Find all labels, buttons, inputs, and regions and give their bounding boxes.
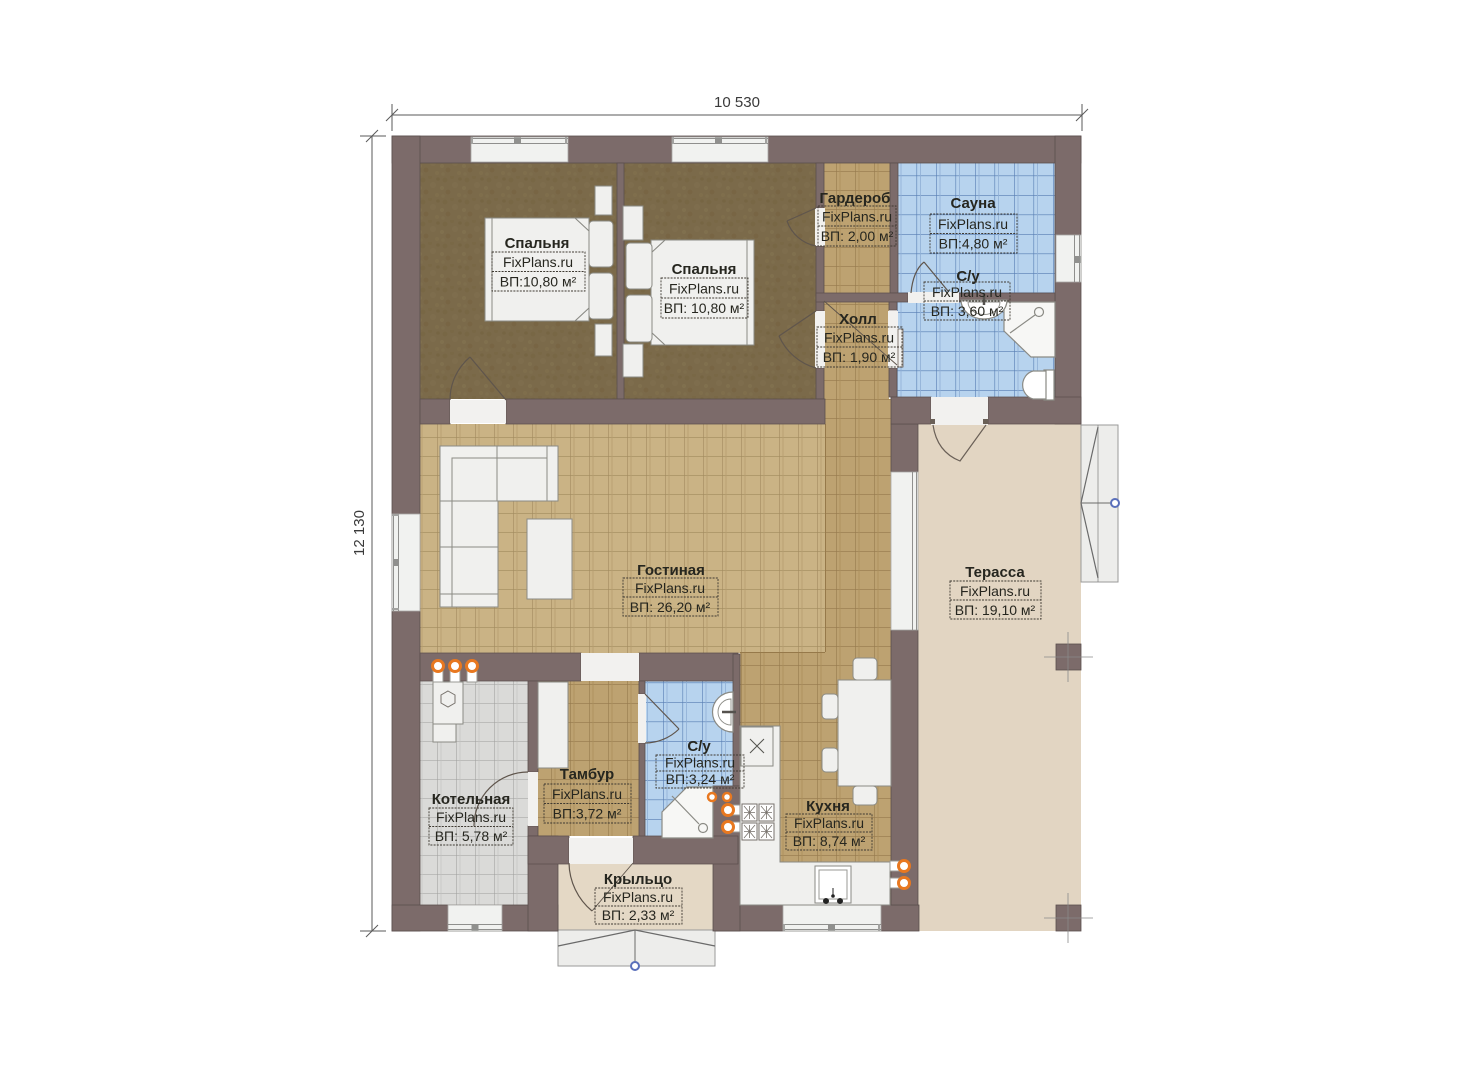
svg-text:ВП: 2,33 м²: ВП: 2,33 м²	[602, 907, 675, 923]
svg-text:FixPlans.ru: FixPlans.ru	[503, 254, 573, 270]
svg-text:FixPlans.ru: FixPlans.ru	[960, 583, 1030, 599]
svg-text:ВП:4,80 м²: ВП:4,80 м²	[939, 236, 1008, 252]
svg-text:Крыльцо: Крыльцо	[604, 871, 672, 888]
svg-text:Котельная: Котельная	[432, 791, 511, 808]
svg-text:FixPlans.ru: FixPlans.ru	[938, 216, 1008, 232]
svg-text:ВП: 10,80 м²: ВП: 10,80 м²	[664, 300, 745, 316]
svg-text:ВП: 19,10 м²: ВП: 19,10 м²	[955, 602, 1036, 618]
svg-text:FixPlans.ru: FixPlans.ru	[932, 284, 1002, 300]
svg-text:FixPlans.ru: FixPlans.ru	[794, 815, 864, 831]
svg-text:ВП: 8,74 м²: ВП: 8,74 м²	[793, 833, 866, 849]
svg-text:FixPlans.ru: FixPlans.ru	[824, 330, 894, 346]
svg-text:Спальня: Спальня	[672, 261, 737, 278]
svg-text:FixPlans.ru: FixPlans.ru	[436, 809, 506, 825]
svg-text:FixPlans.ru: FixPlans.ru	[822, 209, 892, 225]
svg-text:10 530: 10 530	[714, 94, 760, 111]
svg-text:ВП: 1,90 м²: ВП: 1,90 м²	[823, 349, 896, 365]
svg-text:Спальня: Спальня	[505, 235, 570, 252]
svg-text:Гардероб: Гардероб	[820, 190, 891, 207]
svg-text:FixPlans.ru: FixPlans.ru	[669, 281, 739, 297]
svg-text:ВП: 2,00 м²: ВП: 2,00 м²	[821, 228, 894, 244]
svg-text:12 130: 12 130	[351, 510, 368, 556]
svg-text:FixPlans.ru: FixPlans.ru	[603, 889, 673, 905]
svg-text:ВП: 5,78 м²: ВП: 5,78 м²	[435, 828, 508, 844]
svg-text:FixPlans.ru: FixPlans.ru	[552, 786, 622, 802]
svg-text:Холл: Холл	[839, 311, 877, 328]
svg-text:Кухня: Кухня	[806, 798, 850, 815]
svg-text:С/у: С/у	[687, 738, 711, 755]
svg-text:FixPlans.ru: FixPlans.ru	[635, 580, 705, 596]
svg-text:ВП:10,80 м²: ВП:10,80 м²	[500, 274, 577, 290]
svg-text:Тамбур: Тамбур	[560, 766, 614, 783]
svg-text:FixPlans.ru: FixPlans.ru	[665, 755, 735, 771]
svg-text:Сауна: Сауна	[950, 195, 996, 212]
svg-text:ВП:3,24 м²: ВП:3,24 м²	[666, 771, 735, 787]
svg-text:ВП:3,72 м²: ВП:3,72 м²	[553, 806, 622, 822]
svg-text:Гостиная: Гостиная	[637, 562, 705, 579]
svg-text:Терасса: Терасса	[965, 564, 1025, 581]
svg-text:ВП: 3,60 м²: ВП: 3,60 м²	[931, 303, 1004, 319]
svg-text:ВП: 26,20 м²: ВП: 26,20 м²	[630, 599, 711, 615]
